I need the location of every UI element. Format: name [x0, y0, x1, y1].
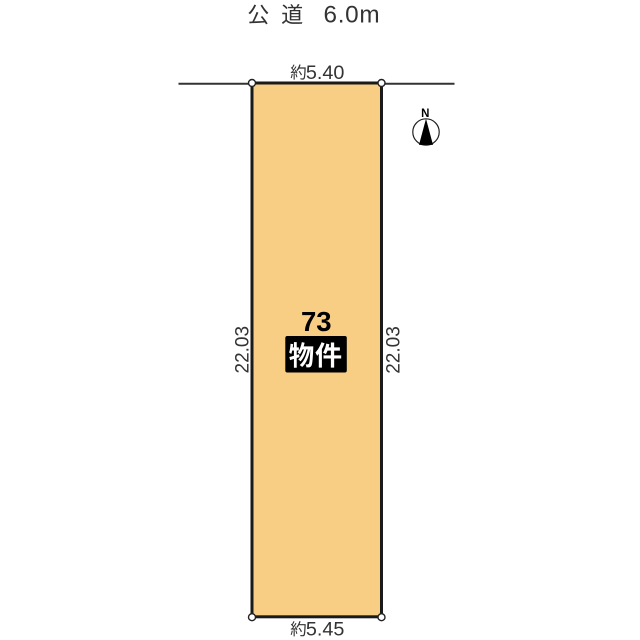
- svg-text:5.40: 5.40: [306, 62, 345, 84]
- svg-text:6.0m: 6.0m: [324, 1, 381, 28]
- svg-text:5.45: 5.45: [306, 619, 345, 640]
- svg-text:N: N: [421, 108, 429, 120]
- svg-text:22.03: 22.03: [383, 326, 404, 374]
- svg-text:22.03: 22.03: [233, 326, 254, 374]
- svg-text:73: 73: [301, 306, 332, 337]
